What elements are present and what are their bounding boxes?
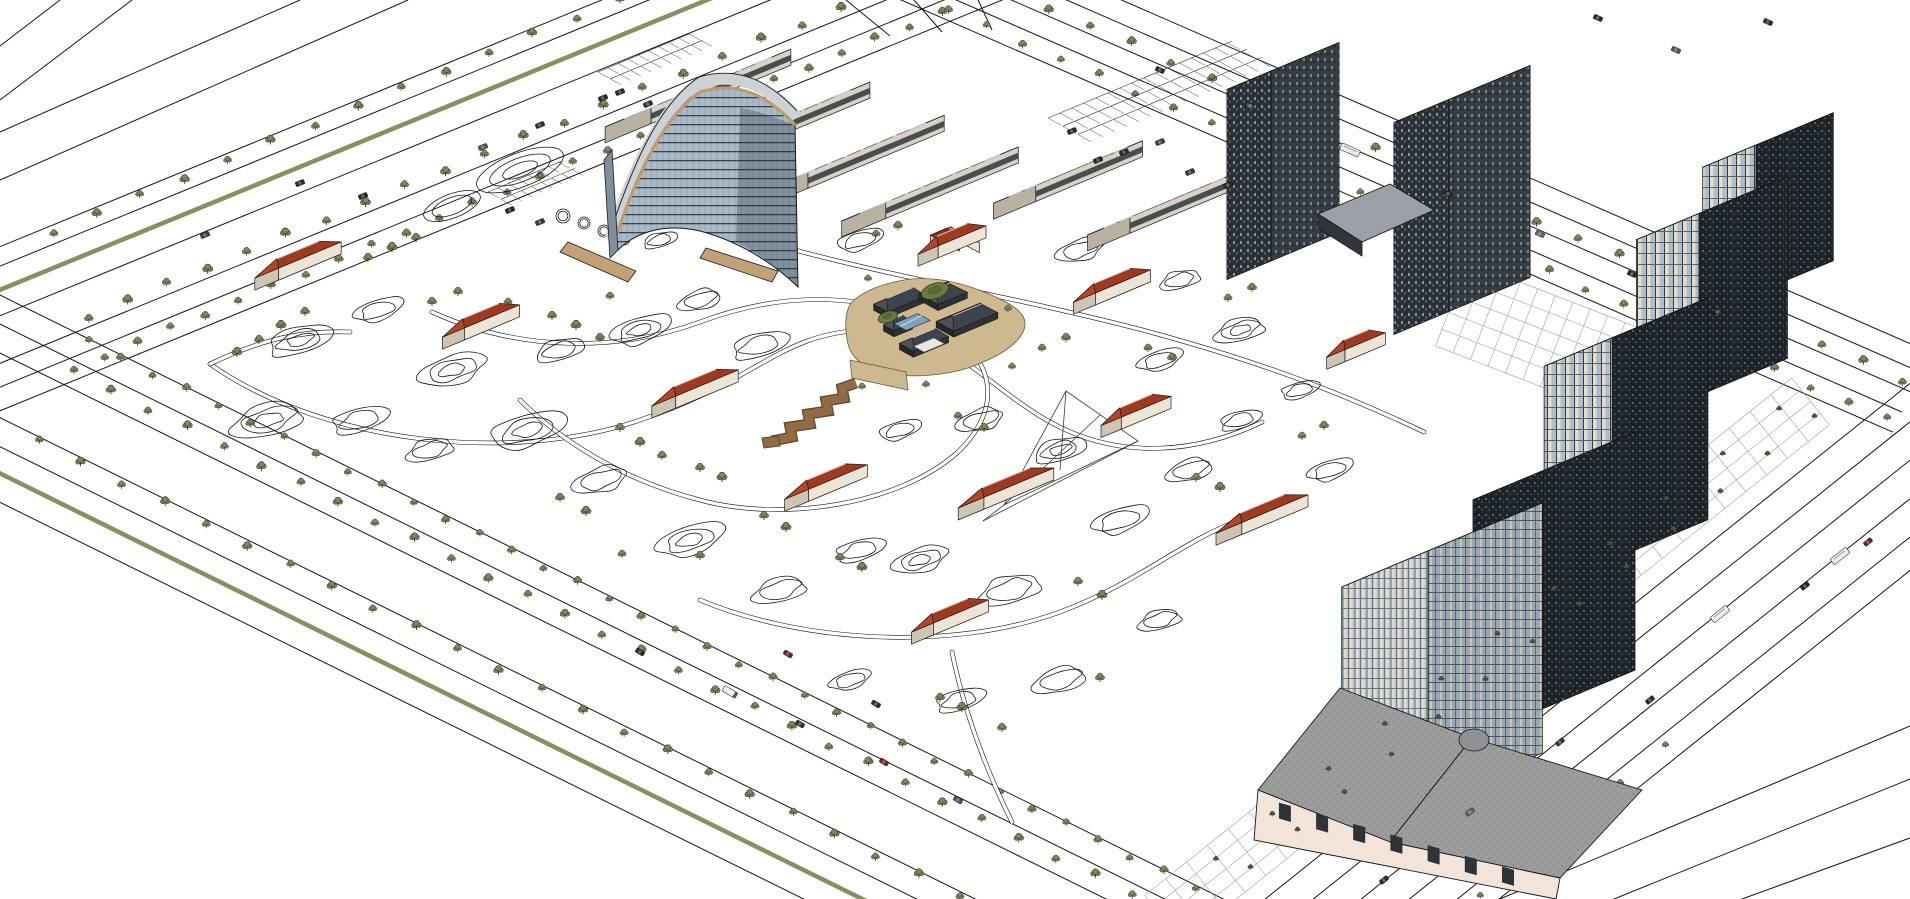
tree-canopy [1168, 59, 1173, 64]
tree-icon [135, 190, 143, 198]
tree-canopy [802, 692, 807, 696]
retail-window-band [808, 121, 944, 184]
garden-path-inner [952, 652, 1012, 822]
tree-canopy [1059, 56, 1064, 60]
car-icon [1067, 127, 1077, 135]
parking-stall-tick [1075, 121, 1088, 128]
curved-endcap [604, 150, 618, 258]
tree-canopy [282, 433, 287, 437]
tree-icon [1073, 577, 1082, 586]
tree-icon [220, 442, 228, 450]
tree-icon [1357, 188, 1364, 195]
office-towers [1227, 43, 1530, 335]
tree-icon [937, 798, 947, 807]
tree-canopy [1900, 378, 1905, 383]
tree-canopy [77, 457, 83, 463]
tree-canopy [1129, 37, 1135, 43]
parking-stall-tick [1147, 91, 1160, 98]
tree-canopy [119, 481, 124, 486]
paving-line [1488, 282, 1520, 366]
villa [1101, 394, 1171, 437]
bus-body [1339, 143, 1360, 157]
tree-icon [312, 449, 321, 457]
tree-canopy [1225, 294, 1230, 299]
tree-icon [1095, 673, 1104, 682]
parking-stall-tick [631, 70, 642, 76]
tree-canopy [118, 353, 123, 358]
parking-stall-tick [671, 53, 682, 59]
tree-canopy [1439, 676, 1442, 679]
tree-canopy [205, 264, 211, 270]
tree-icon [1371, 143, 1381, 152]
tree-icon [440, 166, 450, 176]
parking-stall-tick [701, 41, 712, 47]
tree-canopy [335, 497, 341, 503]
tree-icon [718, 52, 727, 60]
parking-stall-tick [1159, 86, 1172, 93]
contour-line [1137, 609, 1182, 631]
villa [1327, 330, 1386, 370]
tree-canopy [1813, 413, 1816, 416]
tree-icon [1582, 287, 1589, 294]
tree-icon [573, 576, 582, 584]
tree-canopy [557, 493, 563, 498]
tree-canopy [202, 311, 208, 316]
tree-icon [835, 553, 844, 562]
tree-icon [571, 320, 581, 330]
tree-canopy [244, 247, 249, 252]
tree-icon [770, 75, 778, 83]
tree-canopy [719, 472, 725, 478]
tree-canopy [789, 721, 795, 727]
tree-canopy [234, 347, 240, 353]
tree-canopy [574, 15, 579, 20]
villa [652, 369, 738, 418]
paving-line [1729, 428, 1767, 475]
car-icon [505, 206, 515, 214]
car-icon [1863, 537, 1873, 546]
retail-wall [842, 203, 886, 238]
tree-icon [1532, 217, 1542, 226]
tree-canopy [1578, 601, 1581, 604]
tree-canopy [1161, 866, 1166, 871]
tree-icon [480, 150, 489, 158]
tree-icon [203, 264, 213, 274]
tree-icon [223, 156, 231, 164]
tree-canopy [1299, 432, 1304, 437]
parking-stall-tick [1123, 101, 1136, 108]
tree-canopy [1808, 385, 1813, 389]
tree-icon [678, 69, 688, 79]
tree-icon [538, 684, 546, 692]
tree-canopy [1625, 564, 1628, 567]
tree-icon [618, 550, 626, 558]
tree-canopy [525, 590, 530, 595]
road-median-stripe [0, 435, 1193, 899]
parking-stall-tick [549, 167, 560, 173]
tree-icon [978, 814, 986, 822]
tree-canopy [313, 122, 318, 127]
tree-icon [1248, 864, 1254, 869]
villa [442, 303, 519, 349]
tree-icon [864, 757, 874, 766]
tree-canopy [1092, 869, 1098, 875]
tree-canopy [1383, 721, 1386, 724]
contour-line [1165, 272, 1194, 287]
tree-canopy [924, 381, 929, 385]
tree-icon [50, 229, 58, 237]
contour-line [1173, 461, 1210, 479]
site-plan-3d-render [0, 0, 1910, 899]
tree-icon [1052, 855, 1060, 863]
tree-canopy [412, 499, 417, 503]
tree-icon [1859, 355, 1869, 364]
tree-icon [266, 135, 276, 144]
parking-stall-tick [1114, 119, 1127, 126]
tree-canopy [539, 684, 544, 689]
tree-icon [735, 661, 742, 668]
boardwalk-dock [762, 436, 780, 448]
tree-icon [1247, 283, 1256, 292]
tree-icon [620, 729, 628, 737]
car-icon [1555, 737, 1565, 746]
tree-canopy [1193, 885, 1198, 889]
tree-canopy [1209, 119, 1214, 123]
tree-icon [893, 221, 902, 230]
tree-icon [410, 499, 417, 506]
tree-icon [76, 457, 86, 466]
tree-canopy [615, 0, 620, 1]
contour-line [1230, 325, 1251, 336]
tree-canopy [607, 595, 612, 599]
tree-canopy [549, 311, 555, 316]
car-icon [200, 231, 210, 239]
tree-canopy [621, 729, 626, 734]
parking-stall-tick [639, 55, 650, 61]
tree-canopy [957, 892, 962, 897]
tree-icon [1208, 119, 1215, 126]
tree-canopy [712, 686, 718, 692]
tree-canopy [125, 295, 131, 301]
model-viewport [0, 0, 1910, 899]
tree-icon [674, 666, 682, 674]
tree-canopy [442, 166, 448, 172]
tree-canopy [150, 372, 155, 376]
tree-canopy [752, 702, 757, 707]
tree-canopy [1665, 496, 1668, 499]
tree-icon [1094, 835, 1103, 843]
parking-stall-tick [1221, 74, 1234, 81]
tree-canopy [1484, 676, 1487, 679]
parking-stall-tick [1060, 113, 1073, 120]
tree-icon [1898, 378, 1906, 386]
tree-canopy [697, 463, 703, 468]
parking-stall-tick [1194, 71, 1207, 78]
tree-canopy [834, 708, 839, 713]
tree-canopy [939, 798, 945, 804]
tree-canopy [1095, 835, 1100, 840]
tree-canopy [443, 516, 448, 521]
tree-icon [427, 297, 436, 306]
paving-line [1208, 845, 1246, 892]
tree-icon [898, 739, 907, 747]
tree-canopy [1249, 283, 1255, 288]
parking-stall-tick [1171, 81, 1184, 88]
tree-icon [1014, 833, 1024, 842]
road-line [0, 0, 408, 180]
tree-canopy [1063, 333, 1069, 338]
tree-icon [354, 101, 364, 110]
tree-icon [964, 769, 973, 777]
tree-canopy [365, 253, 371, 258]
tree-canopy [302, 307, 308, 312]
tree-icon [1818, 341, 1826, 349]
tree-canopy [959, 702, 965, 708]
car-icon [783, 650, 793, 659]
tree-canopy [837, 553, 843, 558]
car-icon [643, 100, 653, 108]
tree-canopy [736, 661, 741, 665]
tree-icon [787, 721, 797, 730]
parking-stall-tick [659, 47, 670, 53]
tree-icon [560, 609, 570, 618]
tree-icon [1127, 37, 1137, 46]
tree-icon [1883, 414, 1890, 421]
car-icon [535, 121, 545, 129]
tree-canopy [1663, 742, 1667, 746]
parking-stall-tick [691, 45, 702, 51]
tree-icon [242, 247, 251, 255]
tree-icon [322, 217, 331, 225]
parking-stall-tick [1120, 88, 1133, 95]
tree-canopy [135, 337, 141, 342]
car-icon [879, 758, 889, 767]
tree-canopy [1321, 421, 1327, 426]
tree-canopy [895, 221, 901, 226]
tree-canopy [806, 64, 812, 69]
tree-icon [578, 705, 588, 714]
tree-icon [280, 228, 290, 238]
tree-icon [1061, 333, 1070, 342]
car-icon [1645, 695, 1655, 704]
tree-icon [705, 768, 713, 776]
villa [1216, 495, 1308, 546]
tree-canopy [659, 451, 665, 456]
tree-canopy [520, 130, 526, 136]
tree-icon [1008, 363, 1015, 370]
tree-canopy [638, 612, 643, 617]
tree-icon [1191, 473, 1200, 482]
tree-canopy [1097, 673, 1103, 678]
tree-canopy [345, 468, 350, 472]
tree-canopy [86, 314, 91, 319]
tree-icon [756, 33, 766, 43]
garden-path-outline [952, 652, 1012, 822]
tree-icon [922, 381, 929, 388]
car-icon [295, 179, 305, 187]
tree-icon [1718, 489, 1724, 494]
tree-icon [759, 511, 768, 520]
tree-canopy [529, 28, 535, 34]
parking-stall-tick [649, 51, 660, 57]
parking-stall-tick [1206, 66, 1219, 73]
tree-canopy [1846, 398, 1851, 403]
road-line [0, 0, 976, 289]
tree-icon [751, 702, 759, 710]
tree-canopy [182, 175, 188, 181]
tree-icon [378, 480, 387, 488]
tree-canopy [1006, 305, 1011, 309]
tree-icon [830, 829, 840, 838]
tree-canopy [1099, 590, 1105, 596]
tree-canopy [225, 156, 230, 161]
parking-stall-tick [1048, 118, 1061, 125]
tree-canopy [562, 609, 568, 615]
tree-canopy [1583, 287, 1588, 291]
tree-icon [84, 314, 93, 322]
tree-canopy [617, 423, 623, 428]
tree-icon [1765, 451, 1771, 456]
tree-canopy [282, 228, 288, 234]
tree-icon [1720, 451, 1726, 456]
tree-icon [1095, 69, 1104, 77]
tree-canopy [1608, 541, 1611, 544]
parking-stall-tick [641, 66, 652, 72]
tree-icon [637, 132, 645, 140]
contour-line [438, 363, 464, 377]
tree-icon [400, 180, 409, 188]
tree-canopy [868, 722, 873, 726]
parking-stall-tick [618, 64, 629, 70]
tree-icon [695, 551, 704, 560]
tree-icon [983, 21, 990, 28]
tree-icon [441, 67, 451, 76]
parking-stall-tick [1242, 51, 1255, 58]
tree-canopy [676, 666, 681, 671]
tree-canopy [1616, 249, 1622, 255]
tree-icon [287, 560, 295, 568]
tree-canopy [486, 49, 491, 54]
parking-stall-tick [1257, 59, 1270, 66]
tree-canopy [51, 229, 56, 234]
tree-icon [483, 574, 493, 583]
tree-icon [327, 581, 337, 590]
tree-canopy [399, 83, 404, 88]
tree-canopy [860, 383, 865, 387]
parking-stall-tick [1072, 108, 1085, 115]
parking-stall-tick [1245, 64, 1258, 71]
tree-canopy [916, 869, 922, 875]
contour-line [609, 314, 671, 347]
tree-icon [836, 2, 846, 12]
residential-tower-facade [1543, 432, 1635, 708]
landscape-oval [429, 191, 474, 222]
tree-canopy [485, 574, 491, 580]
tree-icon [638, 83, 647, 91]
garden-path-inner [700, 222, 1424, 432]
tree-canopy [509, 546, 514, 551]
tree-icon [242, 541, 252, 550]
tree-canopy [638, 132, 643, 137]
paving-line [1187, 862, 1225, 899]
contour-line [845, 233, 875, 249]
tree-canopy [1029, 805, 1034, 810]
tree-canopy [413, 621, 419, 627]
tree-icon [801, 692, 808, 699]
tree-icon [695, 463, 704, 472]
parking-stall-tick [1099, 111, 1112, 118]
tree-icon [798, 22, 807, 30]
tree-canopy [303, 271, 308, 276]
parking-stall-tick [628, 59, 639, 65]
tree-canopy [482, 150, 487, 155]
parking-row-line [1048, 41, 1232, 118]
tree-icon [453, 287, 462, 296]
tree-icon [276, 320, 286, 330]
tree-canopy [102, 354, 107, 359]
tree-canopy [1130, 891, 1135, 896]
contour-line [654, 522, 726, 558]
tree-canopy [108, 385, 114, 391]
tree-canopy [145, 407, 150, 412]
tree-canopy [411, 533, 417, 539]
contour-line [1091, 505, 1150, 536]
tree-icon [149, 372, 156, 379]
tree-canopy [937, 693, 943, 698]
tree-canopy [204, 520, 209, 525]
tree-icon [117, 481, 125, 489]
tensile-structure [983, 391, 1138, 521]
tree-icon [870, 33, 879, 42]
tree-icon [1160, 866, 1169, 874]
parking-stall-tick [1204, 53, 1217, 60]
contour-line [828, 669, 872, 690]
tree-icon [781, 522, 791, 532]
tree-canopy [562, 119, 567, 124]
tree-canopy [872, 33, 878, 38]
tree-canopy [673, 626, 678, 630]
villa [1073, 268, 1150, 314]
tree-icon [997, 723, 1006, 732]
car-icon [535, 218, 545, 226]
tree-icon [106, 385, 116, 394]
tree-canopy [355, 101, 361, 107]
tree-canopy [770, 673, 775, 678]
tree-icon [635, 437, 645, 447]
road-line [846, 0, 890, 36]
tree-canopy [164, 278, 169, 283]
tree-icon [1215, 482, 1225, 492]
tree-icon [906, 24, 914, 32]
tree-canopy [791, 808, 796, 813]
tree-icon [710, 686, 720, 695]
tree-canopy [298, 478, 303, 483]
tree-icon [717, 472, 727, 482]
tree-canopy [37, 436, 42, 441]
tree-canopy [866, 275, 871, 279]
tree-canopy [1088, 22, 1093, 27]
tree-canopy [1133, 90, 1138, 94]
tree-icon [410, 533, 420, 542]
tree-canopy [1271, 811, 1274, 814]
tree-icon [547, 311, 556, 320]
tree-icon [144, 407, 152, 415]
tree-icon [1144, 344, 1152, 352]
parking-stall-tick [689, 34, 700, 40]
bus-icon [1830, 547, 1850, 565]
contour-line [512, 422, 543, 438]
tree-canopy [372, 519, 377, 524]
